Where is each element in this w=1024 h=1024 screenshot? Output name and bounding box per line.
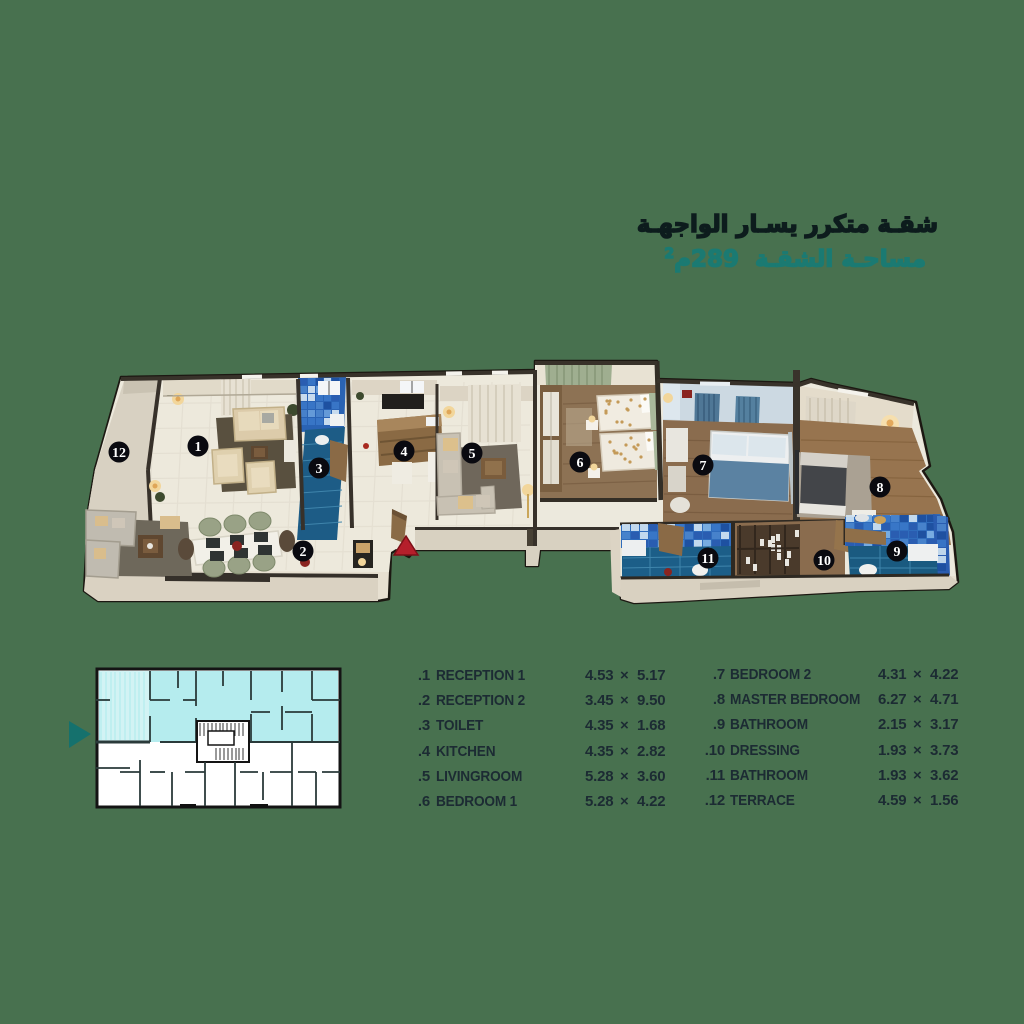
svg-text:7: 7 <box>700 459 707 474</box>
svg-text:8: 8 <box>877 481 884 496</box>
svg-text:3: 3 <box>316 462 323 477</box>
svg-text:4: 4 <box>401 445 408 460</box>
svg-text:5: 5 <box>469 447 476 462</box>
svg-text:12: 12 <box>112 446 126 461</box>
svg-text:2: 2 <box>300 545 307 560</box>
svg-text:6: 6 <box>577 456 584 471</box>
svg-text:9: 9 <box>894 545 901 560</box>
svg-text:11: 11 <box>701 552 714 567</box>
svg-text:1: 1 <box>195 440 202 455</box>
svg-text:10: 10 <box>817 554 831 569</box>
